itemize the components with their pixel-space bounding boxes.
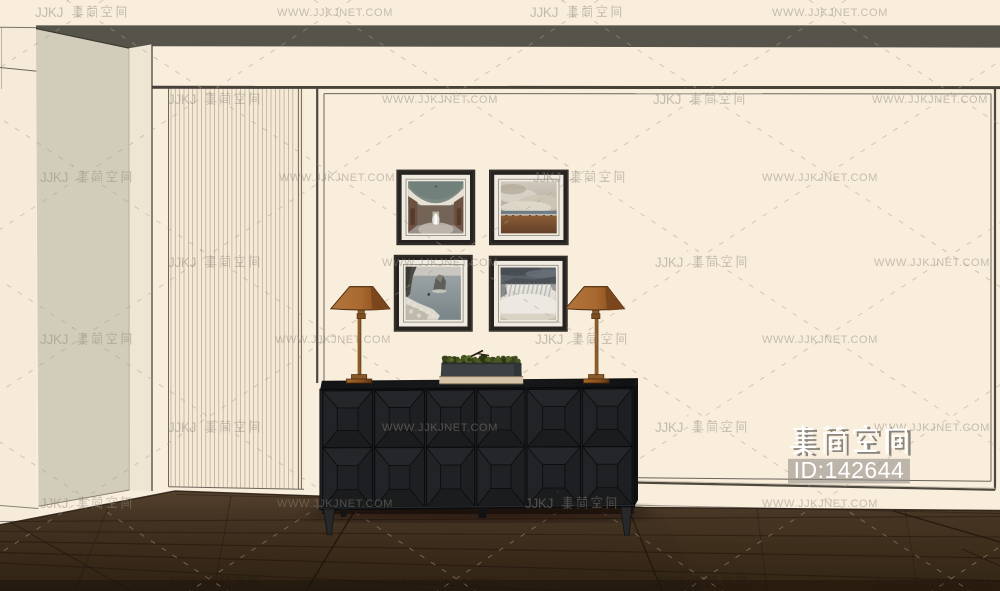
svg-text:JJKJ: JJKJ: [653, 92, 681, 107]
svg-text:JJKJ: JJKJ: [655, 420, 683, 435]
svg-text:ˊ: ˊ: [71, 490, 74, 500]
svg-text:ˊ: ˊ: [564, 164, 567, 174]
svg-text:ˊ: ˊ: [566, 326, 569, 336]
svg-text:JJKJ: JJKJ: [655, 575, 683, 590]
svg-text:ˊ: ˊ: [71, 164, 74, 174]
svg-text:WWW.JJKJNET.COM: WWW.JJKJNET.COM: [277, 498, 393, 510]
svg-text:JJKJ: JJKJ: [535, 332, 563, 347]
svg-text:WWW.JJKJNET.COM: WWW.JJKJNET.COM: [275, 334, 391, 346]
svg-text:JJKJ: JJKJ: [525, 496, 553, 511]
svg-text:JJKJ: JJKJ: [40, 332, 68, 347]
svg-text:JJKJ: JJKJ: [530, 5, 558, 20]
svg-text:JJKJ: JJKJ: [168, 92, 196, 107]
svg-text:WWW.JJKJNET.COM: WWW.JJKJNET.COM: [762, 498, 878, 510]
svg-text:ˊ: ˊ: [684, 86, 687, 96]
svg-text:WWW.JJKJNET.COM: WWW.JJKJNET.COM: [277, 7, 393, 19]
svg-text:WWW.JJKJNET.COM: WWW.JJKJNET.COM: [762, 172, 878, 184]
svg-text:WWW.JJKJNET.COM: WWW.JJKJNET.COM: [382, 257, 498, 269]
svg-text:WWW.JJKJNET.COM: WWW.JJKJNET.COM: [872, 94, 988, 106]
svg-text:ˊ: ˊ: [686, 414, 689, 424]
svg-text:WWW.JJKJNET.COM: WWW.JJKJNET.COM: [762, 334, 878, 346]
svg-text:WWW.JJKJNET.COM: WWW.JJKJNET.COM: [874, 577, 990, 589]
svg-text:JJKJ: JJKJ: [40, 170, 68, 185]
svg-text:ID:142644: ID:142644: [794, 457, 905, 483]
svg-text:JJKJ: JJKJ: [533, 170, 561, 185]
svg-text:WWW.JJKJNET.COM: WWW.JJKJNET.COM: [279, 172, 395, 184]
svg-text:ˊ: ˊ: [199, 414, 202, 424]
svg-text:ˊ: ˊ: [199, 86, 202, 96]
svg-text:JJKJ: JJKJ: [655, 255, 683, 270]
svg-text:JJKJ: JJKJ: [35, 5, 63, 20]
svg-text:ˊ: ˊ: [199, 569, 202, 579]
svg-text:ˊ: ˊ: [686, 569, 689, 579]
svg-text:WWW.JJKJNET.COM: WWW.JJKJNET.COM: [772, 7, 888, 19]
svg-text:JJKJ: JJKJ: [168, 420, 196, 435]
svg-text:ˊ: ˊ: [71, 326, 74, 336]
svg-text:WWW.JJKJNET.COM: WWW.JJKJNET.COM: [382, 577, 498, 589]
svg-text:JJKJ: JJKJ: [40, 496, 68, 511]
svg-text:WWW.JJKJNET.COM: WWW.JJKJNET.COM: [874, 257, 990, 269]
svg-text:ˊ: ˊ: [686, 249, 689, 259]
svg-text:ˊ: ˊ: [561, 0, 564, 9]
svg-text:WWW.JJKJNET.COM: WWW.JJKJNET.COM: [382, 94, 498, 106]
svg-text:ˊ: ˊ: [66, 0, 69, 9]
svg-text:WWW.JJKJNET.COM: WWW.JJKJNET.COM: [382, 422, 498, 434]
svg-text:ˊ: ˊ: [556, 490, 559, 500]
svg-text:JJKJ: JJKJ: [168, 255, 196, 270]
svg-text:ˊ: ˊ: [199, 249, 202, 259]
svg-text:JJKJ: JJKJ: [168, 575, 196, 590]
